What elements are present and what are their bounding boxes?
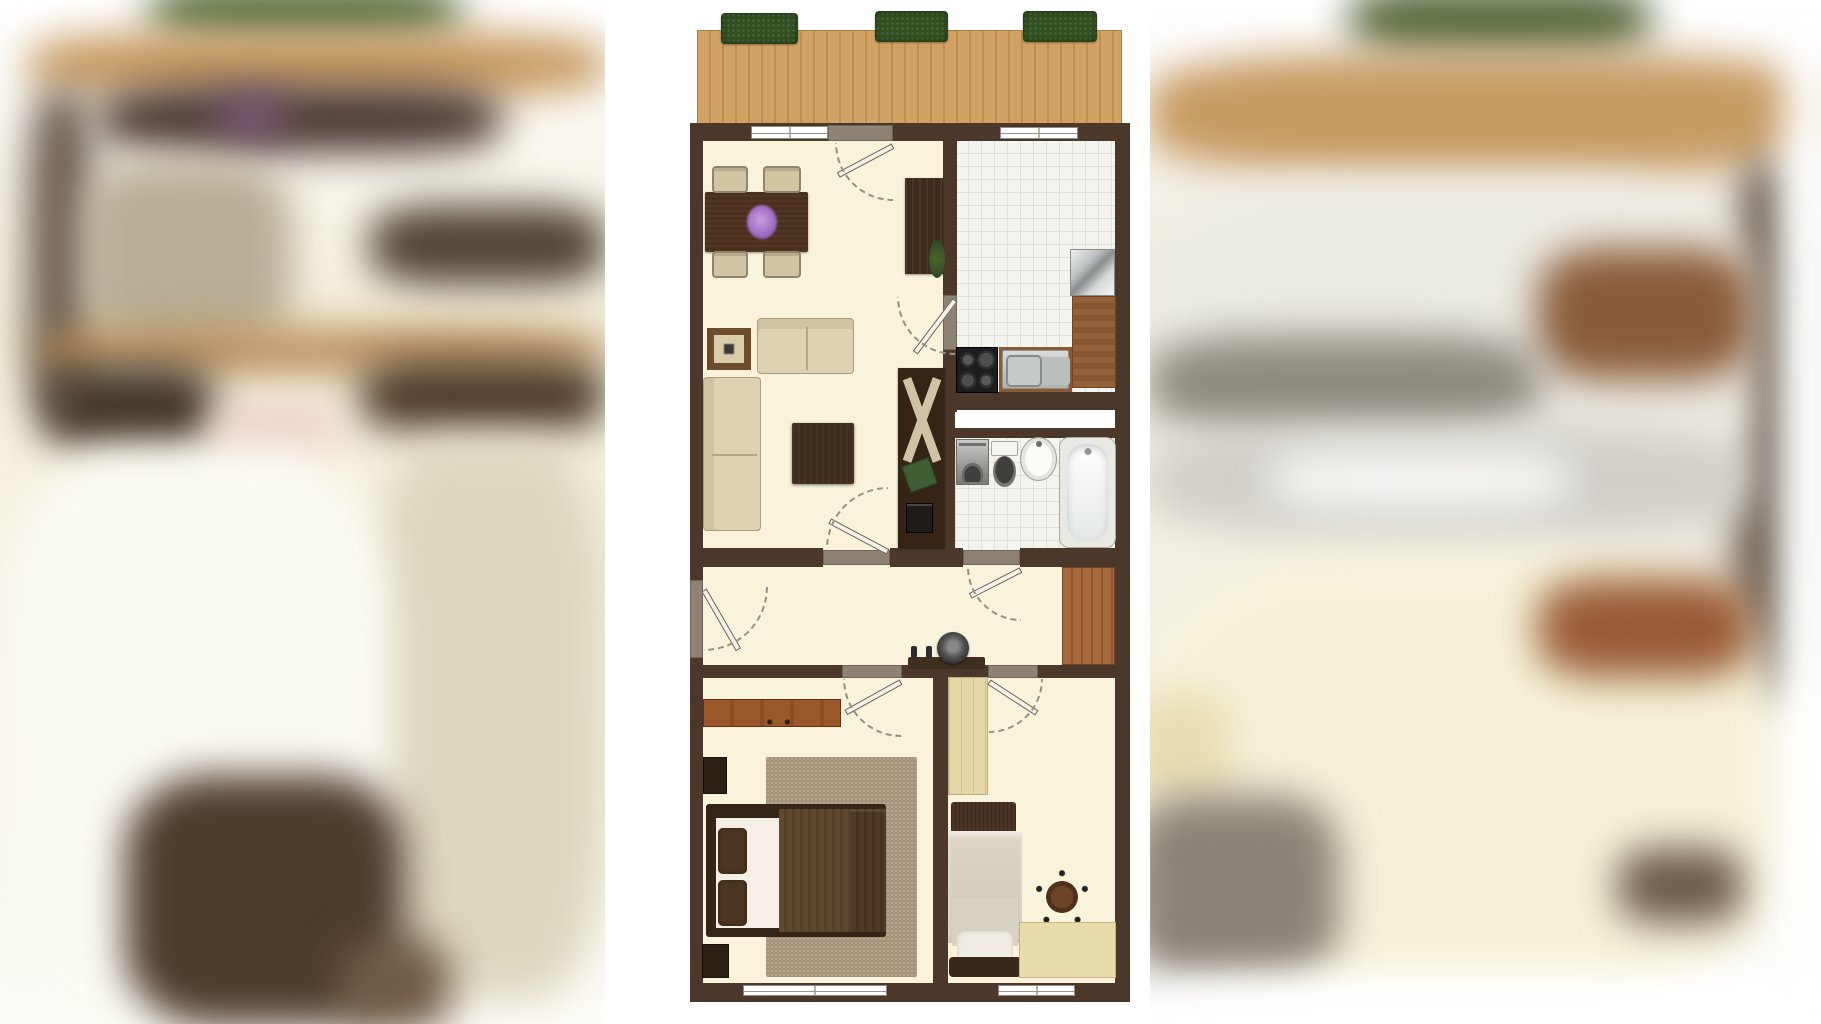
wall-hall-north-c <box>1020 548 1130 567</box>
blur-dark-left <box>50 365 215 450</box>
living-door-sill <box>823 550 890 565</box>
blur-tan <box>1150 695 1230 800</box>
coat-hook <box>911 646 917 658</box>
desk-chair <box>1036 870 1088 924</box>
wall-kitchen-west-upper <box>943 141 957 295</box>
balcony-deck <box>697 30 1122 125</box>
blur-deck-band <box>1150 55 1821 173</box>
blur-pink <box>213 405 335 453</box>
bed-blanket-edge <box>851 812 886 932</box>
desk <box>1019 922 1116 978</box>
wall-hall-south-a <box>690 665 842 678</box>
blur-greenery <box>1350 0 1650 55</box>
nightstand <box>703 757 727 794</box>
two-seat-sofa <box>757 318 854 374</box>
fridge <box>1070 249 1115 296</box>
single-bed-headboard <box>951 802 1016 833</box>
toilet <box>990 440 1019 488</box>
hallway-floor <box>703 565 1115 667</box>
floor-plan-screenshot <box>0 0 1821 1024</box>
planter-right <box>1023 11 1097 42</box>
stove <box>956 347 998 393</box>
kitchen-window <box>1000 127 1078 139</box>
planter-middle <box>875 11 948 42</box>
balcony-door-sill <box>828 125 893 141</box>
wall-hall-north-b <box>890 548 963 567</box>
dining-chair <box>712 251 748 278</box>
bedroom-right-door-sill <box>988 665 1038 678</box>
blur-counter-low <box>1538 578 1753 678</box>
single-bed-footboard <box>949 957 1021 977</box>
wall-hall-south-c <box>1038 665 1130 678</box>
blur-dining-table <box>100 85 500 153</box>
blur-gray-band <box>1150 335 1540 430</box>
kitchen-sink <box>999 347 1072 392</box>
background-blur-right <box>1150 0 1821 1024</box>
blur-counter-top <box>1538 248 1753 380</box>
flower-bouquet <box>747 205 777 239</box>
shelf-stereo <box>906 503 933 533</box>
wall-bedroom-divider <box>933 678 948 983</box>
blur-white-edge <box>1780 0 1821 1024</box>
washing-machine <box>956 439 989 485</box>
planter-left <box>721 13 798 44</box>
bed-pillow-dark <box>718 828 747 874</box>
bedroom-left-window <box>743 985 887 996</box>
bed-pillow-dark <box>718 880 747 926</box>
blur-brown-bottom <box>340 940 450 1024</box>
dining-chair <box>763 251 801 278</box>
sectional-sofa <box>703 377 761 531</box>
background-blur-left <box>0 0 605 1024</box>
wall-left-upper <box>690 141 703 583</box>
hallway-wardrobe <box>1062 567 1115 665</box>
bedroom-left-door-sill <box>842 665 902 678</box>
side-table <box>707 328 751 370</box>
blur-dark-small <box>1618 848 1743 923</box>
coat-hook <box>926 646 932 658</box>
bedroom-right-wardrobe <box>948 677 988 795</box>
bath-door-sill <box>963 550 1020 565</box>
dining-chair <box>763 166 801 193</box>
blur-flowers <box>215 95 285 140</box>
kitchen-counter <box>1072 296 1116 388</box>
blur-white-bottom <box>1150 975 1821 1024</box>
bathtub <box>1059 437 1116 548</box>
wall-kitchen-south <box>943 392 1115 410</box>
coat-rack-hat <box>937 632 969 664</box>
wall-right <box>1115 141 1130 1002</box>
blur-cabinet <box>370 205 605 285</box>
dining-chair <box>712 166 748 193</box>
bedroom-right-window <box>998 985 1075 996</box>
blur-sofa <box>82 162 292 347</box>
blur-white-band <box>1270 450 1570 510</box>
blur-dark-right <box>360 360 605 432</box>
blur-cream-right <box>370 440 605 1000</box>
blur-graybrown <box>1150 795 1340 980</box>
living-plant <box>929 240 945 278</box>
wall-hall-north-a <box>690 548 823 567</box>
washbasin <box>1020 437 1057 481</box>
bedroom-left-sideboard <box>703 699 841 727</box>
balcony-window <box>751 126 828 139</box>
coffee-table <box>792 423 854 484</box>
nightstand <box>702 944 729 978</box>
